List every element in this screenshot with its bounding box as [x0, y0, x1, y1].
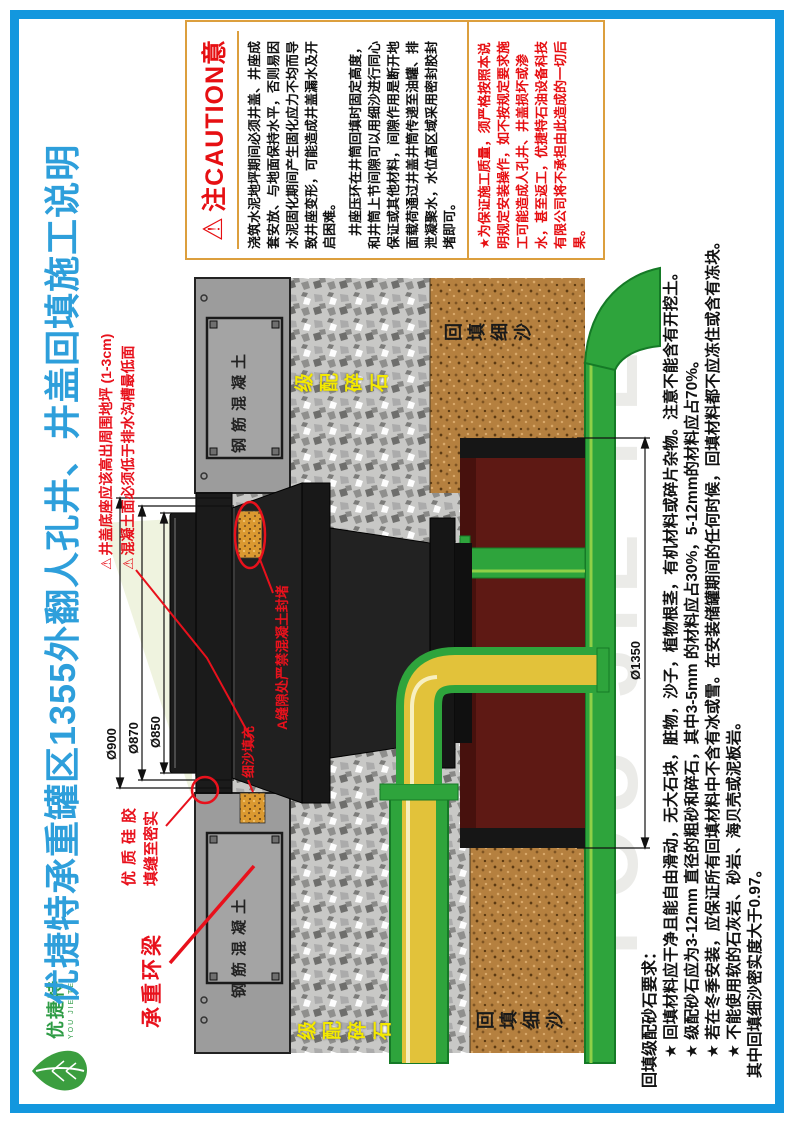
requirement-item: ★ 级配砂石应为3-12mm 直径的粗砂和碎石，其中3-5mm 的材料应占30%… — [682, 20, 703, 1088]
sand-fill-label: 细沙填充 — [238, 726, 257, 778]
requirements-footer: 其中回填细沙密实度大于0.97。 — [745, 20, 766, 1088]
landscape-sheet: YOU JIE TE — [0, 0, 794, 1123]
tank-collar — [460, 438, 585, 848]
cross-section-diagram: Ø900 Ø870 Ø850 Ø1350 ⚠井盖底座应该高出周围地坪 (1-3c… — [92, 258, 662, 1098]
page-title: 优捷特承重罐区1355外翻人孔井、井盖回填施工说明 — [34, 45, 86, 1005]
caution-divider — [467, 22, 469, 258]
note-cover-height: ⚠井盖底座应该高出周围地坪 (1-3cm) — [96, 334, 116, 570]
caution-triangle-icon: ⚠ — [200, 216, 227, 241]
requirement-item: ★ 回填材料应干净且能自由滑动，无大石块，脏物，沙子，植物根茎，有机材料或碎片杂… — [661, 20, 682, 1088]
note-concrete-level: ⚠混凝土面必须低于排水沟槽最低面 — [118, 345, 138, 570]
dim-label-870: Ø870 — [126, 722, 141, 754]
caution-box: ⚠ 注CAUTION意 浇筑水泥地坪期间必须井盖、井座成套安放、与地面保持水平，… — [185, 20, 605, 260]
slab-label-left: 钢筋混凝土 — [228, 893, 249, 998]
gap-warning-label: A缝隙处严禁混凝土封堵 — [271, 585, 291, 730]
dim-label-900: Ø900 — [104, 728, 119, 760]
requirement-item: ★ 若在冬季安装，应保证所有回填材料中不含有冰或雪。在安装储罐期间的任何时候，回… — [703, 20, 724, 1088]
silicone-seal-label-2: 填缝至密实 — [140, 811, 161, 886]
page: YOU JIE TE — [0, 0, 794, 1123]
caution-header-text: 注CAUTION意 — [195, 39, 231, 212]
sand-label-right: 回填细沙 — [444, 320, 562, 346]
gravel-label-right: 级配碎石 — [294, 371, 412, 398]
backfill-requirements: 回填级配砂石要求： ★ 回填材料应干净且能自由滑动，无大石块，脏物，沙子，植物根… — [640, 20, 766, 1088]
leaf-logo-icon — [30, 1045, 92, 1097]
requirements-title: 回填级配砂石要求： — [640, 20, 661, 1088]
gravel-label-left: 级配碎石 — [297, 1019, 415, 1046]
caution-header: ⚠ 注CAUTION意 — [187, 31, 239, 249]
warning-triangle-icon: ⚠ — [120, 557, 136, 570]
slab-label-right: 钢筋混凝土 — [228, 348, 249, 453]
ring-beam-label: 承重环梁 — [136, 932, 166, 1028]
requirement-item: ★ 不能使用软的石灰岩、砂岩、海贝壳或泥板岩。 — [724, 20, 745, 1088]
dim-label-850: Ø850 — [148, 716, 163, 748]
caution-paragraph-2: ★为保证施工质量，须严格按照本说明规定安装操作，如不按规定要求施工可能造成人孔井… — [476, 31, 589, 249]
caution-paragraph-1b: 井座压环在井筒回填时固定高度，和井筒上节间隙可以用细沙进行同心保证或其他材料，间… — [347, 31, 460, 249]
sand-label-left: 回填细沙 — [476, 1008, 582, 1034]
silicone-seal-label-1: 优质硅胶 — [118, 802, 139, 886]
warning-triangle-icon: ⚠ — [98, 557, 114, 570]
caution-paragraph-1a: 浇筑水泥地坪期间必须井盖、井座成套安放、与地面保持水平，否则易因水泥固化期间产生… — [246, 31, 340, 249]
